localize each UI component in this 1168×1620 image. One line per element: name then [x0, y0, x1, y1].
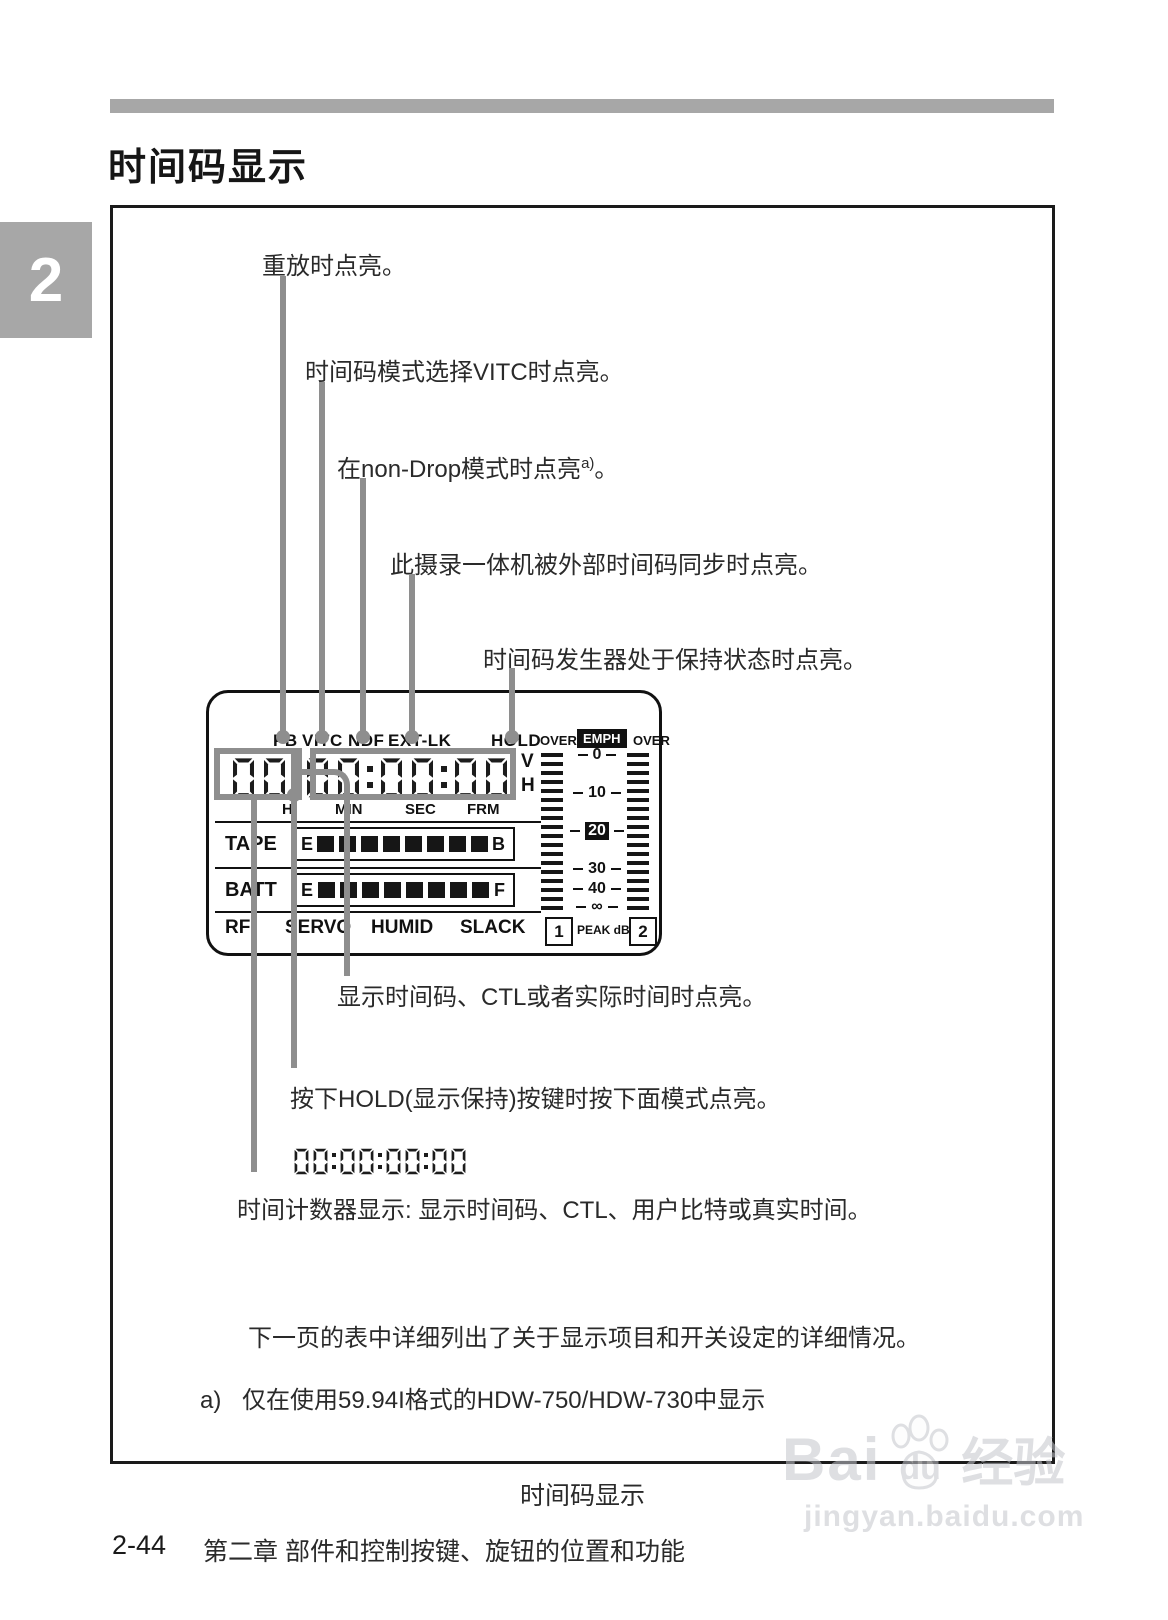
manual-page: 2 时间码显示 重放时点亮。 时间码模式选择VITC时点亮。 在non-Drop…: [0, 0, 1168, 1620]
callout-ndf-text: 在non-Drop模式时点亮: [337, 456, 581, 483]
leader-dot-pb: [276, 730, 290, 744]
leader-line-pb: [280, 276, 286, 738]
leader-elbow-counter-lit: [301, 769, 350, 976]
top-rule: [110, 99, 1054, 113]
hold-mode-timecode: [293, 1146, 467, 1176]
footnote-marker: a): [200, 1387, 221, 1414]
annotation-counter-lit: 显示时间码、CTL或者实际时间时点亮。: [337, 977, 766, 1012]
meter-over-right: OVER: [633, 733, 670, 748]
watermark-bai: Bai: [782, 1430, 881, 1490]
status-slack: SLACK: [460, 917, 525, 939]
footnote: a) 仅在使用59.94I格式的HDW-750/HDW-730中显示: [200, 1380, 765, 1415]
callout-ndf-period: 。: [594, 456, 618, 483]
leader-line-extlk: [409, 574, 415, 738]
panel-rule-2: [215, 867, 541, 869]
chapter-tab: 2: [0, 222, 92, 338]
leader-line-counter: [251, 800, 257, 1172]
channel-1-badge: 1: [545, 917, 573, 946]
callout-ndf: 在non-Drop模式时点亮a)。: [337, 449, 618, 484]
meter-tick-inf: ∞: [561, 898, 633, 916]
status-humid: HUMID: [371, 917, 433, 939]
baidu-paw-icon: du: [883, 1406, 953, 1490]
annotation-counter-desc: 时间计数器显示: 显示时间码、CTL、用户比特或真实时间。: [237, 1190, 872, 1225]
leader-dot-ndf: [356, 730, 370, 744]
unit-label-frm: FRM: [467, 801, 500, 818]
footnote-ref: a): [581, 455, 594, 472]
watermark-brand: Bai du 经验: [782, 1406, 1084, 1490]
meter-tick-10: 10: [561, 784, 633, 802]
watermark: Bai du 经验 jingyan.baidu.com: [782, 1406, 1084, 1534]
callout-extlk: 此摄录一体机被外部时间码同步时点亮。: [390, 545, 822, 580]
leader-line-vitc: [319, 382, 325, 738]
chapter-number: 2: [29, 245, 63, 316]
tape-full-label: B: [492, 834, 505, 855]
unit-label-sec: SEC: [405, 801, 436, 818]
footer-chapter: 第二章 部件和控制按键、旋钮的位置和功能: [203, 1532, 685, 1568]
field-label-h: H: [521, 775, 535, 797]
page-number: 2-44: [112, 1530, 166, 1561]
callout-hold: 时间码发生器处于保持状态时点亮。: [483, 640, 867, 675]
batt-full-label: F: [494, 880, 505, 901]
status-rf: RF: [225, 917, 250, 939]
channel-2-badge: 2: [629, 917, 657, 946]
peak-db-label: PEAK dB: [577, 923, 630, 937]
panel-rule-3: [215, 911, 541, 913]
leader-dot-hold: [505, 730, 519, 744]
meter-tick-0: 0: [561, 746, 633, 764]
annotation-hold-key: 按下HOLD(显示保持)按键时按下面模式点亮。: [290, 1079, 781, 1114]
footnote-text: 仅在使用59.94I格式的HDW-750/HDW-730中显示: [242, 1387, 765, 1414]
watermark-url: jingyan.baidu.com: [804, 1500, 1084, 1534]
leader-dot-vitc: [315, 730, 329, 744]
leader-dot-extlk: [405, 730, 419, 744]
field-label-v: V: [521, 751, 534, 773]
leader-line-ndf: [360, 478, 366, 738]
meter-bars-ch1: [541, 753, 563, 915]
watermark-jingyan: 经验: [961, 1438, 1065, 1490]
meter-tick-20: 20: [561, 822, 633, 840]
note-next-page: 下一页的表中详细列出了关于显示项目和开关设定的详细情况。: [248, 1318, 920, 1353]
panel-rule-1: [215, 821, 541, 823]
leader-dot-hold-key: [287, 788, 301, 802]
leader-line-hold: [509, 668, 515, 738]
watermark-du: du: [899, 1449, 941, 1488]
meter-tick-40: 40: [561, 880, 633, 898]
lcd-display-panel: PB VITC NDF EXT-LK HOLD V H H MIN SEC FR…: [206, 690, 662, 956]
callout-vitc: 时间码模式选择VITC时点亮。: [305, 352, 624, 387]
page-title: 时间码显示: [108, 136, 308, 191]
meter-tick-30: 30: [561, 860, 633, 878]
